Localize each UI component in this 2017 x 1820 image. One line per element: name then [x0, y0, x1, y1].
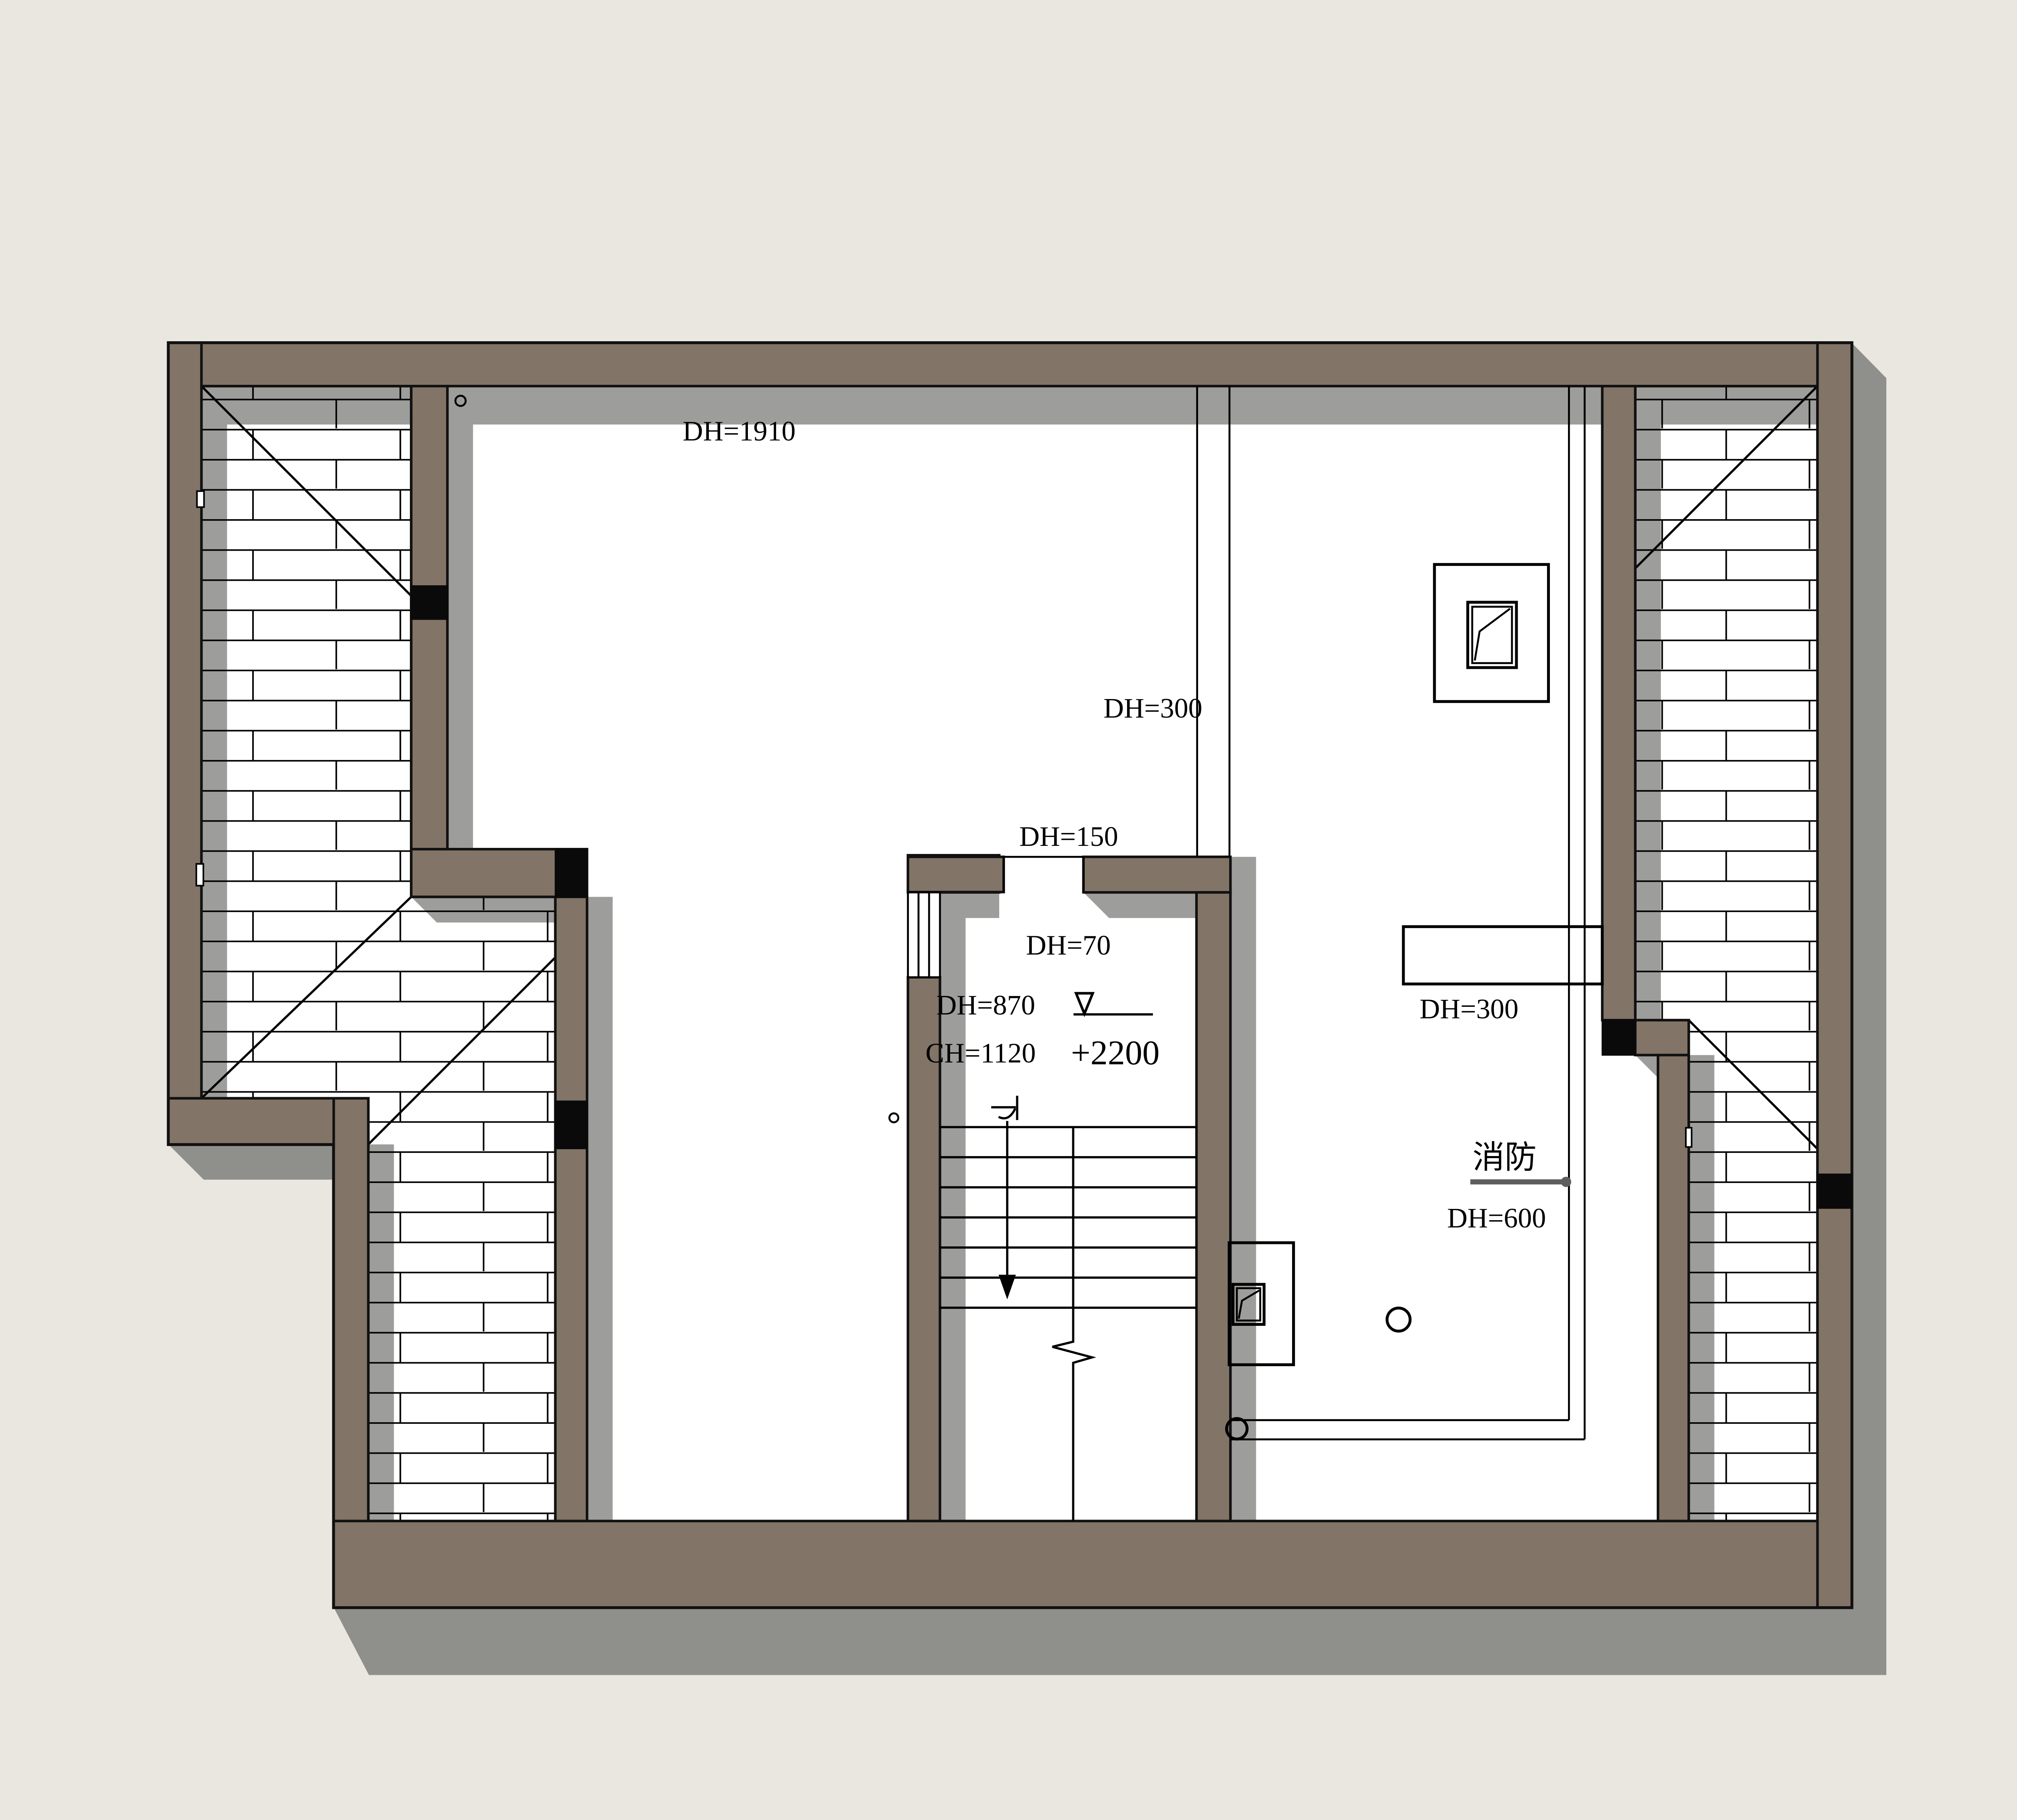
shadow-stair-left	[940, 892, 966, 1521]
label-beam-mid: DH=300	[1104, 693, 1203, 724]
label-door-height-top: DH=1910	[683, 416, 796, 447]
column-mid-left	[555, 1101, 587, 1148]
wall-int-right	[1602, 386, 1635, 1020]
wall-tick-left-1	[197, 491, 204, 507]
wall-bottom	[334, 1521, 1852, 1607]
shadow-wall-1397	[447, 386, 473, 849]
label-level-mark: +2200	[1071, 1034, 1160, 1072]
label-opening-lower: DH=70	[1026, 930, 1111, 961]
window-frame	[908, 892, 940, 977]
wall-int-lower-left	[555, 897, 587, 1521]
column-jog-left	[555, 849, 587, 897]
fire-leader-dot	[1561, 1177, 1571, 1187]
wall-tick-left-2	[196, 864, 203, 886]
wall-lintel-left	[908, 857, 1004, 892]
wall-tick-right	[1686, 1128, 1691, 1147]
label-opening-upper: DH=150	[1019, 821, 1118, 852]
label-window-dh: DH=870	[936, 990, 1035, 1021]
wall-left	[169, 343, 202, 1144]
wall-lintel-right	[1084, 857, 1230, 892]
wall-jog-right	[1635, 1020, 1689, 1055]
shadow-wall-1833	[587, 897, 613, 1521]
floor-plan-canvas: DH=1910 DH=300 DH=150 DH=70 DH=870 CH=11…	[0, 0, 2017, 1820]
label-window-ch: CH=1120	[925, 1038, 1036, 1069]
column-upper-left	[411, 586, 447, 620]
column-jog-right	[1602, 1020, 1635, 1055]
page: DH=1910 DH=300 DH=150 DH=70 DH=870 CH=11…	[0, 0, 2017, 1820]
label-fire: 消防	[1472, 1140, 1537, 1175]
label-beam-right: DH=300	[1420, 993, 1518, 1025]
wall-int-lower-right	[1658, 1055, 1689, 1521]
wall-right	[1817, 343, 1852, 1607]
wall-top	[169, 343, 1852, 386]
label-fire-dh: DH=600	[1447, 1203, 1546, 1234]
column-right-wall	[1817, 1174, 1852, 1208]
